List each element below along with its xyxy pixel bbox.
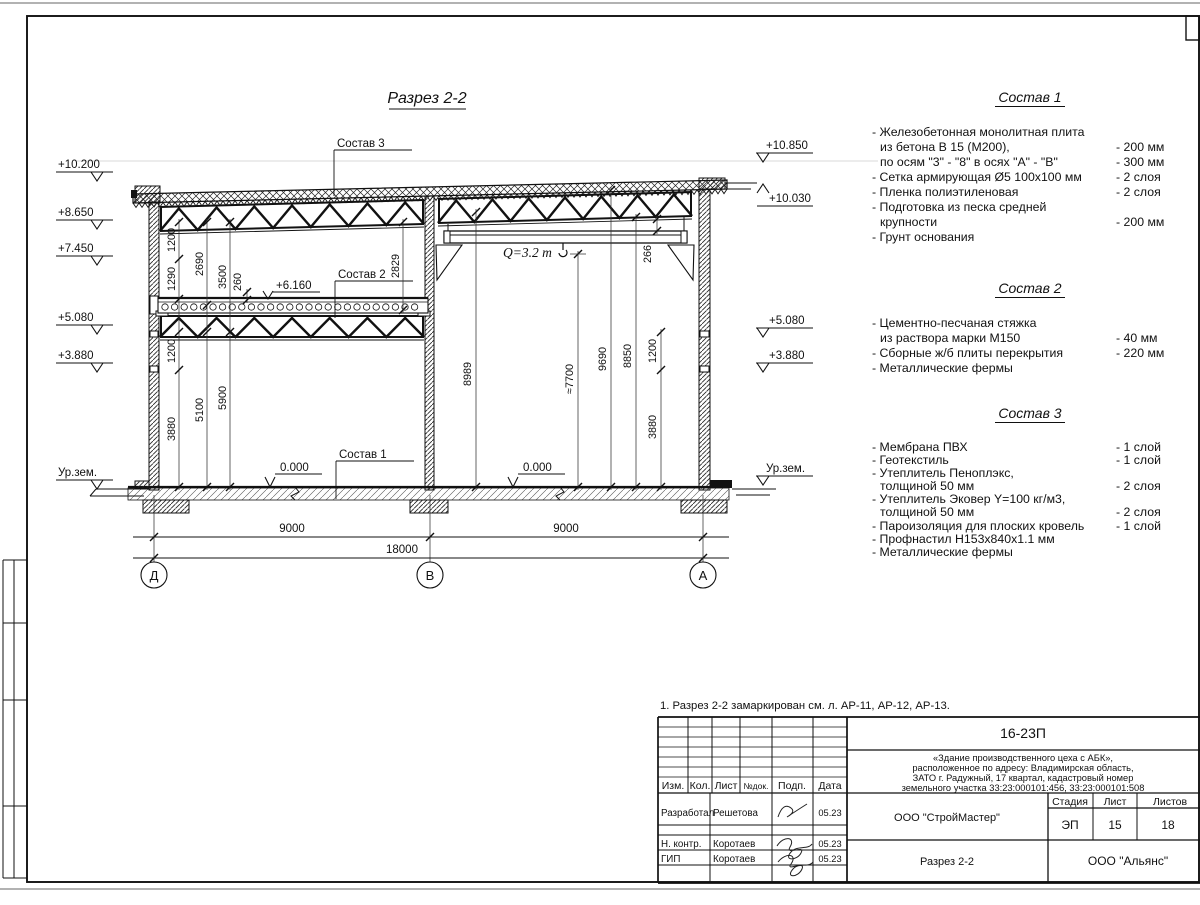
composition-2-title: Состав 2	[872, 280, 1188, 296]
object-line: «Здание производственного цеха с АБК»,	[933, 753, 1113, 763]
dim-label: 2690	[194, 252, 206, 276]
dim-label: 266	[642, 245, 654, 263]
callout-sostav2: Состав 2	[338, 269, 386, 281]
composition-3-block: Состав 3 - Мембрана ПВХ- 1 слой - Геотек…	[872, 405, 1188, 559]
dim-label: 1290	[166, 267, 178, 291]
titleblock-column-headers: Изм. Кол. Лист №док. Подп. Дата	[662, 780, 842, 792]
object-line: ЗАТО г. Радужный, 17 квартал, кадастровы…	[913, 773, 1134, 783]
elevation-label: +10.030	[769, 193, 811, 205]
dim-span-right: 9000	[553, 523, 579, 535]
col-ndok: №док.	[744, 781, 769, 791]
titleblock-right: 16-23П «Здание производственного цеха с …	[894, 725, 1187, 868]
list-item: из раствора марки М150- 40 мм	[872, 331, 1188, 346]
list-item: толщиной 50 мм- 2 слоя	[872, 506, 1188, 519]
axis-label-v: В	[426, 568, 435, 583]
elevation-label: +3.880	[769, 350, 805, 362]
list-item: из бетона В 15 (М200),- 200 мм	[872, 140, 1188, 155]
row-date: 05.23	[818, 808, 841, 818]
elevation-label: +8.650	[58, 207, 94, 219]
doc-title: Разрез 2-2	[920, 856, 974, 868]
dim-label: 5100	[194, 398, 206, 422]
elevation-marks-left: +10.200 +8.650 +7.450 +5.080 +3.880 Ур.з…	[58, 159, 100, 479]
dim-label: 3880	[166, 417, 178, 441]
elevation-label: +5.080	[769, 315, 805, 327]
axis-label-d: Д	[150, 568, 159, 583]
dim-span-left: 9000	[279, 523, 305, 535]
signature-stroke	[778, 804, 807, 817]
dim-label: 8850	[622, 344, 634, 368]
callout-sostav3: Состав 3	[337, 138, 385, 150]
row-name: Коротаев	[713, 854, 755, 865]
composition-title-text: Состав 1	[995, 89, 1064, 107]
list-item: - Грунт основания	[872, 230, 1188, 245]
dim-label: 260	[232, 273, 244, 291]
dim-label: ≈7700	[564, 364, 576, 394]
list-item: - Пароизоляция для плоских кровель- 1 сл…	[872, 520, 1188, 533]
dim-label: 8989	[462, 362, 474, 386]
elevation-label: +3.880	[58, 350, 94, 362]
elevation-6160-label: +6.160	[276, 280, 312, 292]
composition-2-block: Состав 2 - Цементно-песчаная стяжка из р…	[872, 280, 1188, 376]
dim-label: 5900	[217, 386, 229, 410]
composition-1-title: Состав 1	[872, 89, 1188, 105]
row-role: Разработал	[661, 808, 715, 819]
composition-2-list: - Цементно-песчаная стяжка из раствора м…	[872, 316, 1188, 376]
signature-stroke	[777, 839, 812, 859]
customer-org: ООО "Альянс"	[1088, 854, 1168, 868]
object-line: земельного участка 33:23:000101:456, 33:…	[902, 783, 1145, 793]
dim-label: 1200	[647, 339, 659, 363]
dim-label: 1200	[166, 339, 178, 363]
dim-label: 9690	[597, 347, 609, 371]
project-code: 16-23П	[1000, 725, 1046, 741]
sheets-total: 18	[1161, 818, 1175, 832]
dim-label: 3880	[647, 415, 659, 439]
callout-sostav1: Состав 1	[339, 449, 387, 461]
dim-label: 3500	[217, 265, 229, 289]
sheet-number: 15	[1108, 818, 1122, 832]
row-role: Н. контр.	[661, 839, 701, 850]
stage-value: ЭП	[1061, 818, 1078, 832]
list-item: - Железобетонная монолитная плита	[872, 125, 1188, 140]
row-date: 05.23	[818, 839, 841, 849]
row-name: Коротаев	[713, 839, 755, 850]
dim-label: 2829	[390, 254, 402, 278]
horizontal-dimensions: 9000 9000 18000	[279, 523, 579, 556]
list-item: - Металлические фермы	[872, 546, 1188, 559]
list-item: - Пленка полиэтиленовая- 2 слоя	[872, 185, 1188, 200]
col-list: Лист	[715, 780, 738, 792]
titleblock-signature-rows: Разработал Решетова 05.23 Н. контр. Коро…	[661, 808, 842, 865]
zero-level-right: 0.000	[523, 462, 552, 474]
col-izm: Изм.	[662, 780, 685, 792]
col-data: Дата	[818, 780, 841, 792]
drawing-sheet: Разрез 2-2 Состав 3 Состав 2 Состав 1 +6…	[0, 0, 1200, 900]
col-podp: Подп.	[778, 780, 806, 792]
ground-level-label: Ур.зем.	[58, 467, 97, 479]
list-item: - Сетка армирующая Ø5 100х100 мм- 2 слоя	[872, 170, 1188, 185]
row-name: Решетова	[713, 808, 758, 819]
sheet-note: 1. Разрез 2-2 замаркирован см. л. АР-11,…	[660, 700, 950, 712]
list-item: - Сборные ж/б плиты перекрытия- 220 мм	[872, 346, 1188, 361]
stage-label: Стадия	[1052, 796, 1088, 808]
composition-title-text: Состав 2	[995, 280, 1064, 298]
list-item: - Цементно-песчаная стяжка	[872, 316, 1188, 331]
dim-total: 18000	[386, 544, 418, 556]
col-kol: Кол.	[690, 780, 711, 792]
dim-label: 1200	[166, 228, 178, 252]
sheet-label: Лист	[1104, 796, 1127, 808]
drawing-title-group: Разрез 2-2	[387, 90, 466, 107]
axis-label-a: А	[699, 568, 708, 583]
elevation-marks-right: +10.850 +10.030 +5.080 +3.880 Ур.зем.	[766, 140, 811, 475]
elevation-label: +10.850	[766, 140, 808, 152]
list-item: по осям "3" - "8" в осях "А" - "В"- 300 …	[872, 155, 1188, 170]
zero-level-left: 0.000	[280, 462, 309, 474]
row-date: 05.23	[818, 854, 841, 864]
row-role: ГИП	[661, 854, 680, 865]
composition-3-list: - Мембрана ПВХ- 1 слой - Геотекстиль- 1 …	[872, 441, 1188, 559]
composition-1-list: - Железобетонная монолитная плита из бет…	[872, 125, 1188, 245]
axis-bubbles: Д В А	[141, 562, 716, 588]
crane-capacity-label: Q=3.2 т	[503, 245, 552, 260]
vertical-dimensions: 1200 1290 2690 3500 260 2829 1200 3880 5…	[166, 228, 659, 441]
list-item: - Подготовка из песка средней	[872, 200, 1188, 215]
elevation-label: +10.200	[58, 159, 100, 171]
list-item: крупности- 200 мм	[872, 215, 1188, 230]
composition-3-title: Состав 3	[872, 405, 1188, 421]
composition-title-text: Состав 3	[995, 405, 1064, 423]
object-line: расположенное по адресу: Владимирская об…	[912, 763, 1133, 773]
elevation-label: +5.080	[58, 312, 94, 324]
list-item: - Металлические фермы	[872, 361, 1188, 376]
list-item: - Профнастил Н153х840х1.1 мм	[872, 533, 1188, 546]
elevation-label: +7.450	[58, 243, 94, 255]
drawing-title: Разрез 2-2	[387, 90, 466, 107]
ground-level-label: Ур.зем.	[766, 463, 805, 475]
sheets-label: Листов	[1153, 796, 1188, 808]
composition-1-block: Состав 1 - Железобетонная монолитная пли…	[872, 89, 1188, 245]
designer-org: ООО "СтройМастер"	[894, 812, 1000, 824]
